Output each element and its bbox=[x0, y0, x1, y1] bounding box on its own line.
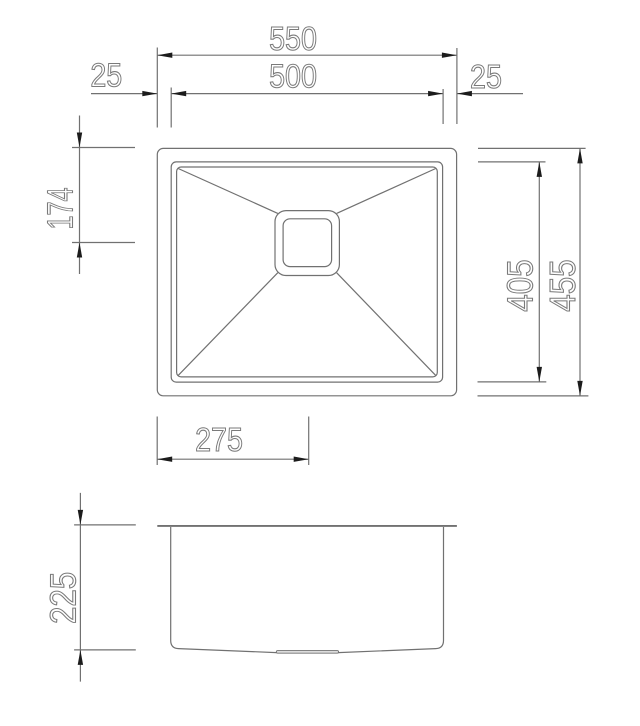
svg-text:225: 225 bbox=[44, 572, 85, 624]
svg-text:25: 25 bbox=[470, 58, 502, 95]
svg-text:405: 405 bbox=[500, 259, 541, 311]
svg-text:174: 174 bbox=[40, 187, 81, 229]
svg-text:455: 455 bbox=[543, 259, 584, 311]
svg-text:275: 275 bbox=[195, 421, 243, 458]
svg-text:550: 550 bbox=[269, 20, 317, 57]
svg-text:25: 25 bbox=[90, 57, 122, 94]
svg-text:500: 500 bbox=[269, 58, 317, 95]
